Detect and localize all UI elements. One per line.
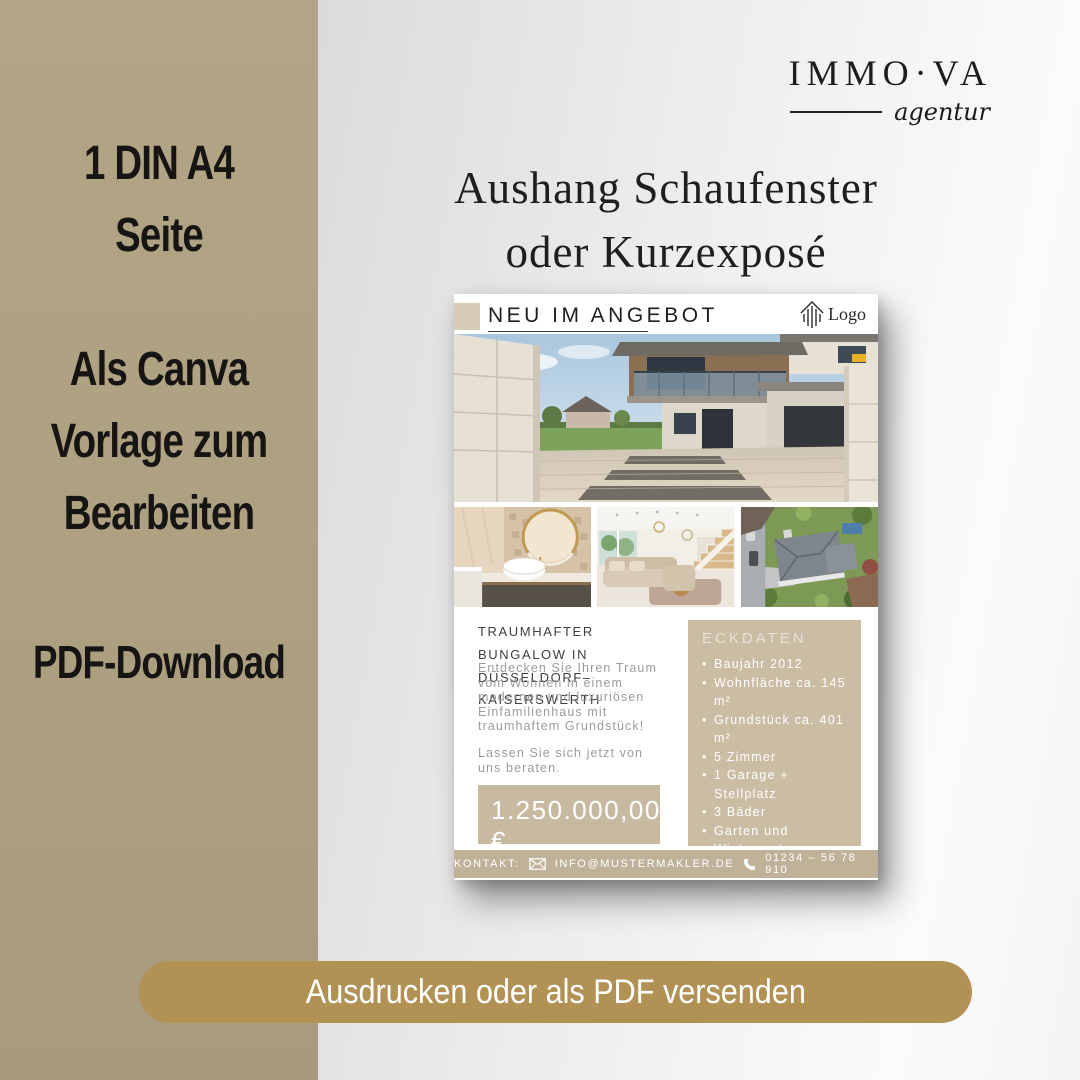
list-item: 1 Garage + Stellplatz — [702, 766, 853, 803]
listing-cta-text: Lassen Sie sich jetzt von uns beraten. — [478, 746, 670, 775]
cta-button[interactable]: Ausdrucken oder als PDF versenden — [139, 961, 972, 1023]
brand-rule — [790, 111, 882, 113]
left-panel: 1 DIN A4 Seite Als Canva Vorlage zum Bea… — [0, 0, 318, 1080]
feature-line: PDF-Download — [32, 626, 286, 698]
feature-canva: Als Canva Vorlage zum Bearbeiten — [0, 334, 318, 550]
page-title: Aushang Schaufenster oder Kurzexposé — [428, 156, 904, 284]
page-title-line1: Aushang Schaufenster — [428, 156, 904, 220]
feature-line: 1 DIN A4 — [32, 128, 286, 200]
contact-bar: KONTAKT: INFO@MUSTERMAKLER.DE 01234 – 56… — [454, 850, 878, 878]
feature-line: Seite — [32, 200, 286, 272]
flyer-logo-label: Logo — [828, 304, 866, 325]
thumb-bathroom-photo — [454, 507, 591, 607]
listing-description: Entdecken Sie Ihren Traum vom Wohnen in … — [478, 661, 670, 734]
eckdaten-box: ECKDATEN Baujahr 2012Wohnfläche ca. 145 … — [688, 620, 861, 846]
contact-email: INFO@MUSTERMAKLER.DE — [555, 858, 734, 870]
eckdaten-title: ECKDATEN — [702, 630, 853, 647]
envelope-icon — [529, 858, 546, 870]
flyer-accent-square — [454, 303, 480, 330]
brand-subline: agentur — [789, 98, 992, 126]
cta-button-label: Ausdrucken oder als PDF versenden — [305, 973, 805, 1012]
flyer-card: NEU IM ANGEBOT Logo — [454, 294, 878, 880]
feature-line: Vorlage zum — [32, 406, 286, 478]
list-item: Grundstück ca. 401 m² — [702, 711, 853, 748]
price-value: 1.250.000,00 € — [491, 795, 660, 857]
flyer-logo: Logo — [798, 299, 866, 329]
contact-label: KONTAKT: — [454, 858, 520, 870]
main-photo-house-exterior — [454, 334, 878, 502]
feature-line: Bearbeiten — [32, 478, 286, 550]
price-box: 1.250.000,00 € zzgl. 3,57 % Provision — [478, 785, 660, 844]
thumb-livingroom-photo — [597, 507, 734, 607]
flyer-header-rule — [488, 331, 648, 332]
brand-logo: IMMO·VA agentur — [789, 52, 992, 126]
brand-name: IMMO·VA — [789, 52, 992, 94]
feature-pdf: PDF-Download — [0, 626, 318, 698]
feature-pages: 1 DIN A4 Seite — [0, 128, 318, 272]
house-icon — [798, 299, 826, 329]
listing-title-line1: TRAUMHAFTER BUNGALOW IN — [478, 621, 674, 667]
phone-icon — [743, 858, 756, 871]
list-item: Wohnfläche ca. 145 m² — [702, 674, 853, 711]
thumb-aerial-photo — [741, 507, 878, 607]
thumbnail-row — [454, 507, 878, 607]
eckdaten-list: Baujahr 2012Wohnfläche ca. 145 m²Grundst… — [702, 655, 853, 877]
list-item: Baujahr 2012 — [702, 655, 853, 674]
list-item: 5 Zimmer — [702, 748, 853, 767]
list-item: 3 Bäder — [702, 803, 853, 822]
contact-phone: 01234 – 56 78 910 — [765, 852, 878, 876]
brand-tagline: agentur — [894, 98, 990, 126]
feature-line: Als Canva — [32, 334, 286, 406]
flyer-header-title: NEU IM ANGEBOT — [488, 304, 718, 328]
page-title-line2: oder Kurzexposé — [428, 220, 904, 284]
